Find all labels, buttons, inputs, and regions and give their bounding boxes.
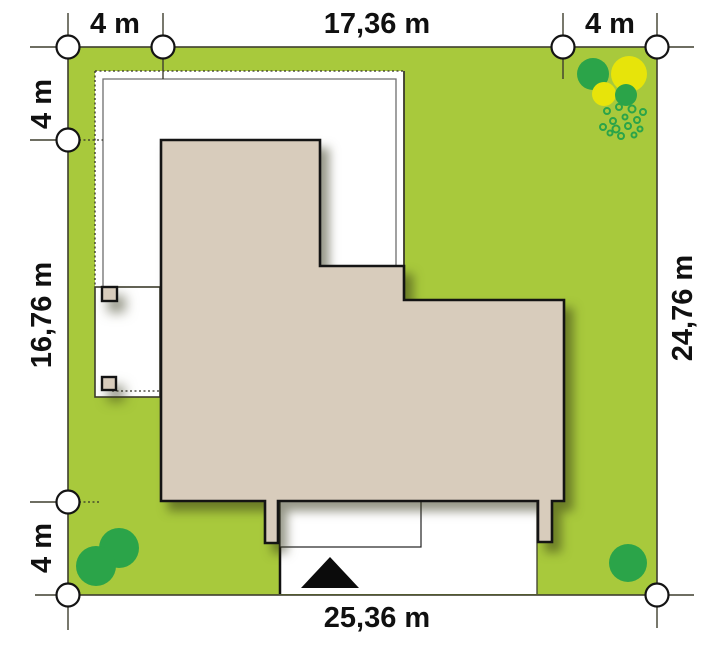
boundary-marker [152, 36, 175, 59]
dimension-label-left-center: 16,76 m [26, 262, 58, 368]
dimension-label-left-bottom: 4 m [26, 523, 58, 573]
boundary-marker [57, 129, 80, 152]
dimension-label-left-top: 4 m [26, 79, 58, 129]
dimension-label-top-left: 4 m [90, 8, 140, 40]
boundary-marker [646, 36, 669, 59]
boundary-marker [552, 36, 575, 59]
pergola-post-bottom [102, 377, 116, 390]
tree-icon [592, 82, 616, 106]
boundary-marker [57, 36, 80, 59]
dimension-label-bottom: 25,36 m [324, 602, 430, 634]
dimension-label-top-center: 17,36 m [324, 8, 430, 40]
pergola-post-top [102, 287, 117, 301]
boundary-marker [57, 584, 80, 607]
tree-icon [609, 544, 647, 582]
site-plan: 4 m 17,36 m 4 m 4 m 16,76 m 4 m 24,76 m … [0, 0, 720, 656]
entry-slab [280, 501, 421, 547]
dimension-label-right: 24,76 m [667, 255, 699, 361]
boundary-marker [646, 584, 669, 607]
tree-icon [615, 84, 637, 106]
tree-icon [76, 546, 116, 586]
boundary-marker [57, 491, 80, 514]
dimension-label-top-right: 4 m [585, 8, 635, 40]
site-plan-canvas: 4 m 17,36 m 4 m 4 m 16,76 m 4 m 24,76 m … [0, 0, 720, 656]
